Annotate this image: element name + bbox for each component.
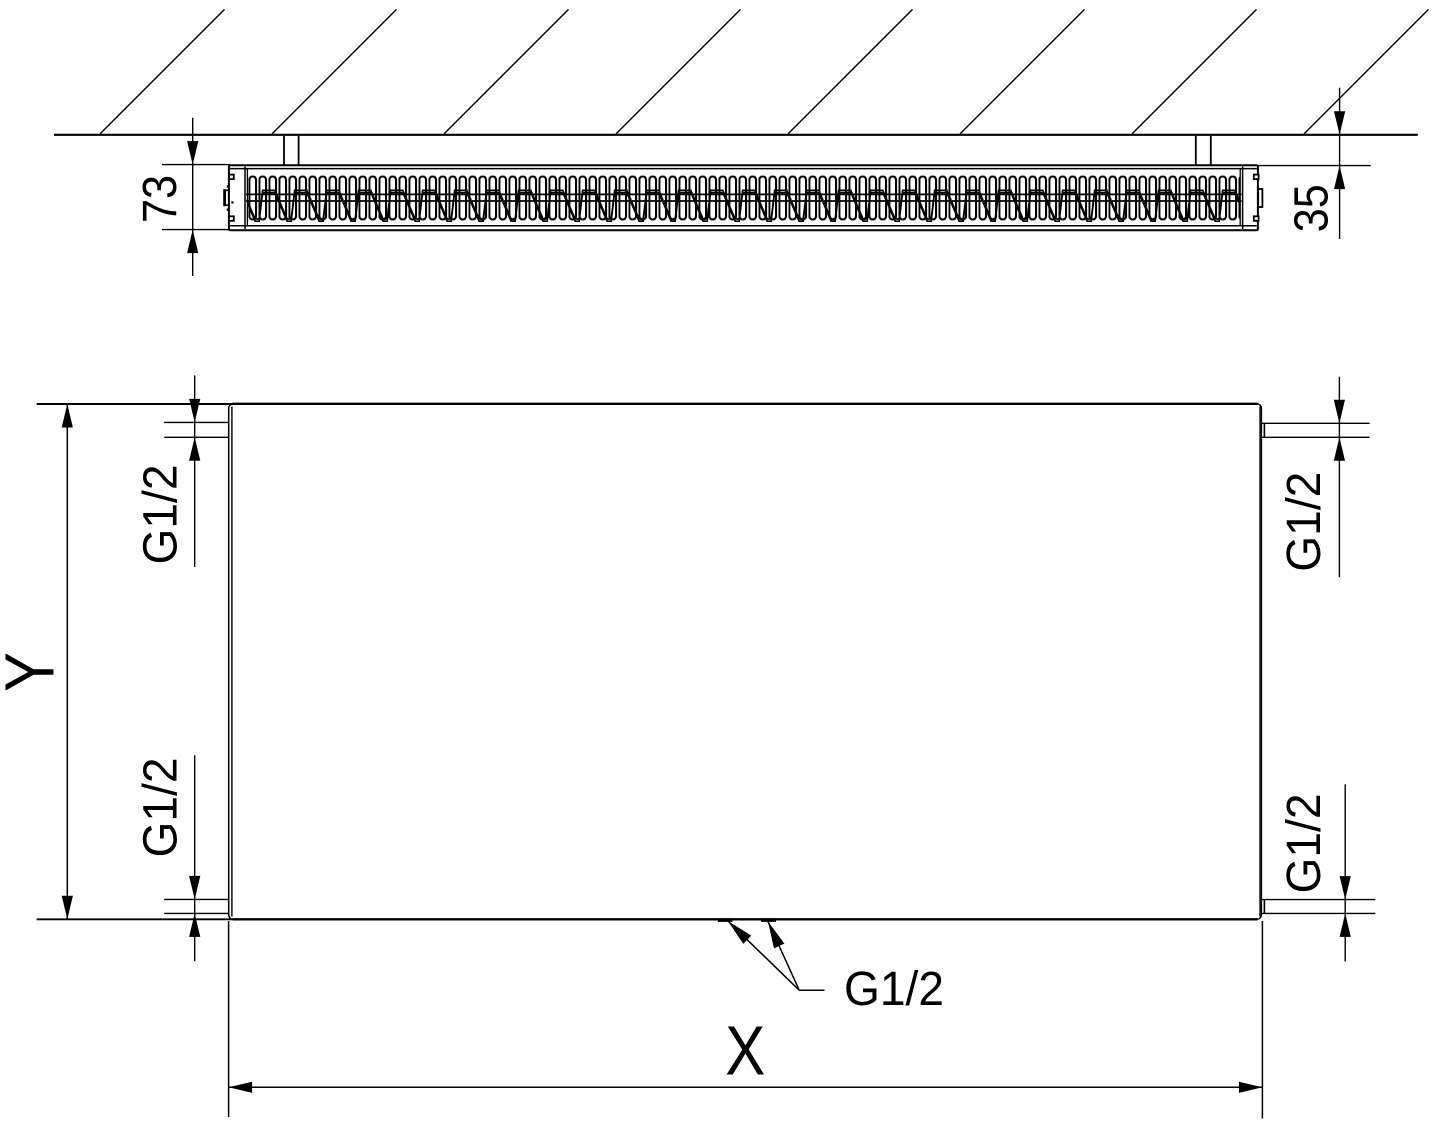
svg-text:G1/2: G1/2 [1277,794,1331,894]
svg-text:35: 35 [1285,184,1339,232]
svg-text:G1/2: G1/2 [134,758,188,858]
svg-text:X: X [725,1012,765,1090]
svg-text:G1/2: G1/2 [844,962,944,1016]
svg-text:G1/2: G1/2 [134,465,188,565]
svg-text:73: 73 [133,175,187,223]
svg-text:G1/2: G1/2 [1277,472,1331,572]
svg-text:Y: Y [0,652,69,692]
